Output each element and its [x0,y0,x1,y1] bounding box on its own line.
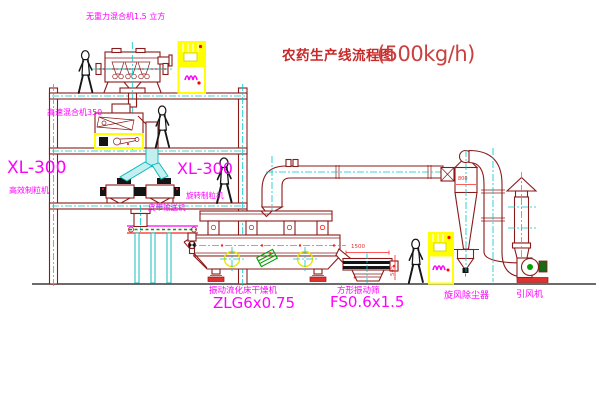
diagram-title-capacity: (500kg/h) [377,44,475,65]
belt-conveyor [127,226,198,283]
label-fluid-bed-dryer-model: ZLG6x0.75 [213,296,295,311]
label-high-speed-mixer: 高速混合机350 [47,109,102,117]
granulator-right [140,178,180,203]
dryer-foot-right [310,269,326,282]
label-granulator-left-name: 高效制粒机 [9,187,49,195]
control-cabinet-bottom [429,233,453,284]
fluid-bed-dryer [184,211,350,282]
label-induced-draft-fan: 引风机 [516,291,543,300]
dimension-sieve-height: 545 [391,266,397,277]
granulator-left [100,178,140,203]
dryer-foot-left [208,269,224,282]
high-speed-mixer [95,99,158,148]
worker-ground [409,239,423,283]
label-granulator-mid-model: XL-300 [177,161,233,177]
mixer-motor-box [95,134,143,148]
process-flow-diagram: 农药生产线流程图 (500kg/h) 无重力混合机1.5 立方 高速混合机350… [0,0,600,403]
label-gravity-free-mixer: 无重力混合机1.5 立方 [86,13,165,21]
label-granulator-left-model: XL-300 [7,160,66,177]
label-belt-conveyor: 皮带输送机 [148,204,186,212]
label-granulator-mid-name: 旋转制粒机 [186,192,224,200]
control-cabinet-top [179,42,206,93]
label-cyclone-separator: 旋风除尘器 [444,292,489,301]
dimension-sieve-length: 1500 [351,245,365,251]
label-vibrating-sieve-model: FS0.6x1.5 [330,295,404,310]
worker-top-floor [79,51,93,93]
dryer-risers [208,221,328,235]
induced-draft-fan [517,258,548,283]
dryer-exhaust-duct [262,156,452,214]
conveyor-discharge-valve [188,233,196,254]
dimension-cyclone-inlet: 800 [458,177,468,182]
